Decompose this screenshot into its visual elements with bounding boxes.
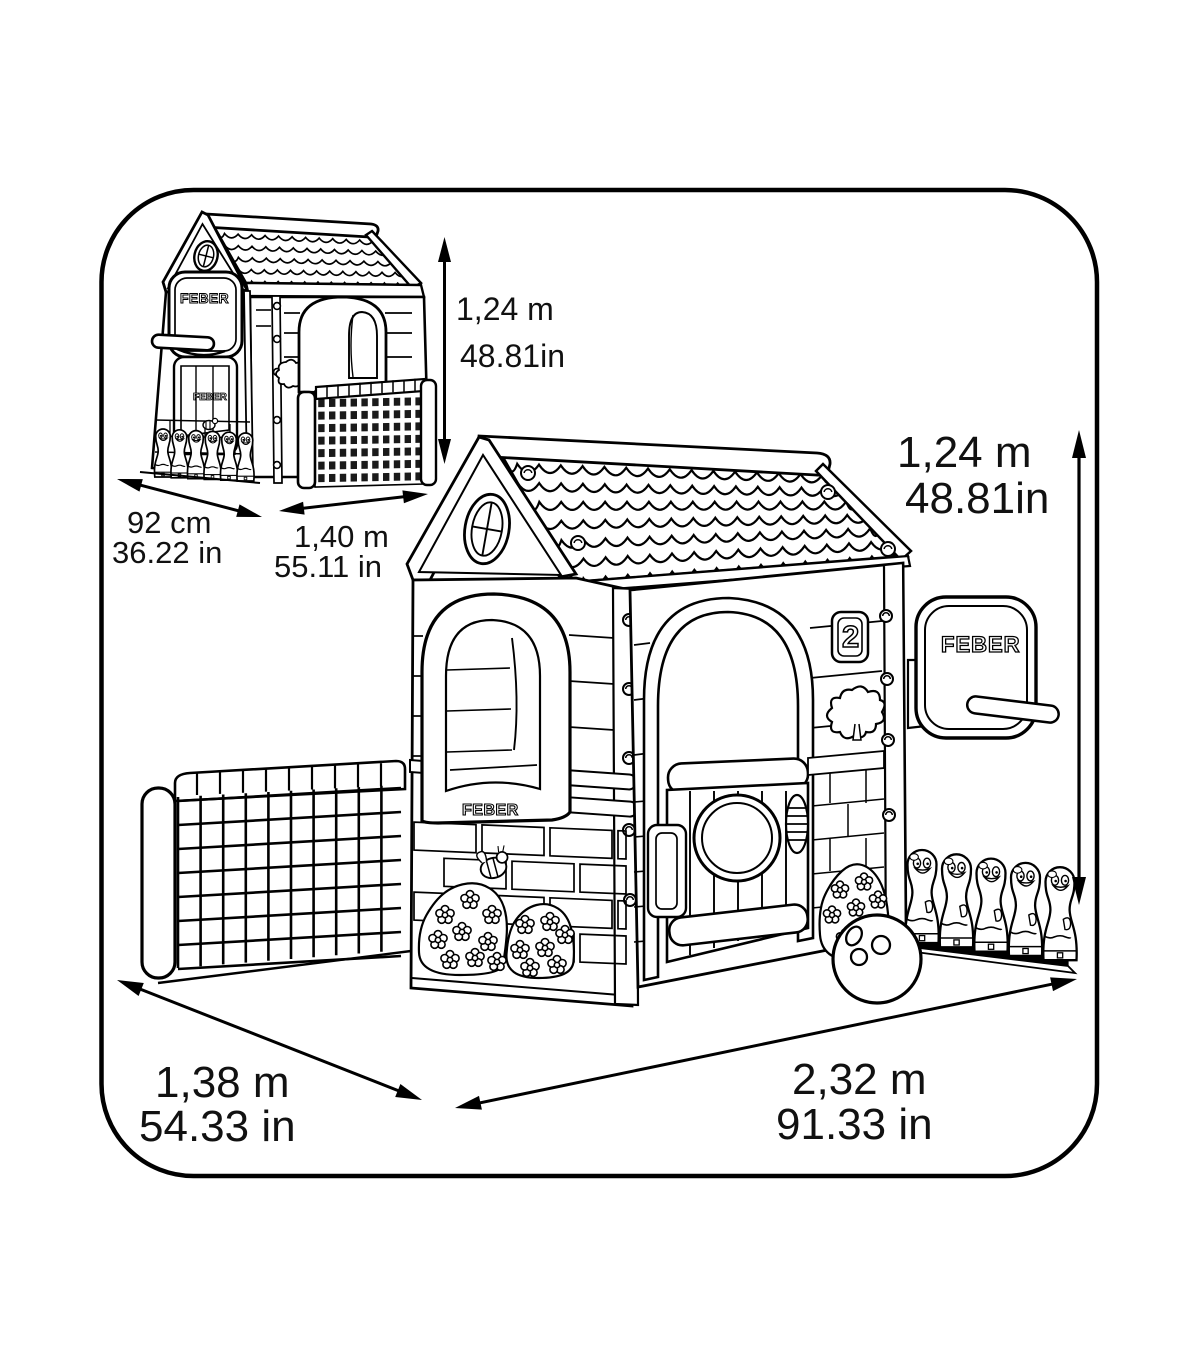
svg-text:91.33 in: 91.33 in — [776, 1100, 933, 1149]
svg-text:1,24 m: 1,24 m — [897, 428, 1032, 477]
svg-text:1,38 m: 1,38 m — [155, 1058, 290, 1107]
svg-text:55.11 in: 55.11 in — [274, 549, 382, 584]
svg-text:FEBER: FEBER — [941, 632, 1021, 657]
svg-text:36.22 in: 36.22 in — [112, 535, 222, 570]
svg-text:2: 2 — [842, 619, 859, 654]
svg-text:FEBER: FEBER — [462, 802, 519, 819]
svg-text:2,32 m: 2,32 m — [792, 1055, 927, 1104]
svg-text:FEBER: FEBER — [180, 290, 229, 306]
svg-text:54.33 in: 54.33 in — [139, 1102, 296, 1151]
svg-text:48.81in: 48.81in — [905, 474, 1049, 523]
svg-text:FEBER: FEBER — [193, 392, 228, 403]
svg-text:48.81in: 48.81in — [460, 338, 565, 374]
svg-text:1,24 m: 1,24 m — [456, 291, 554, 327]
